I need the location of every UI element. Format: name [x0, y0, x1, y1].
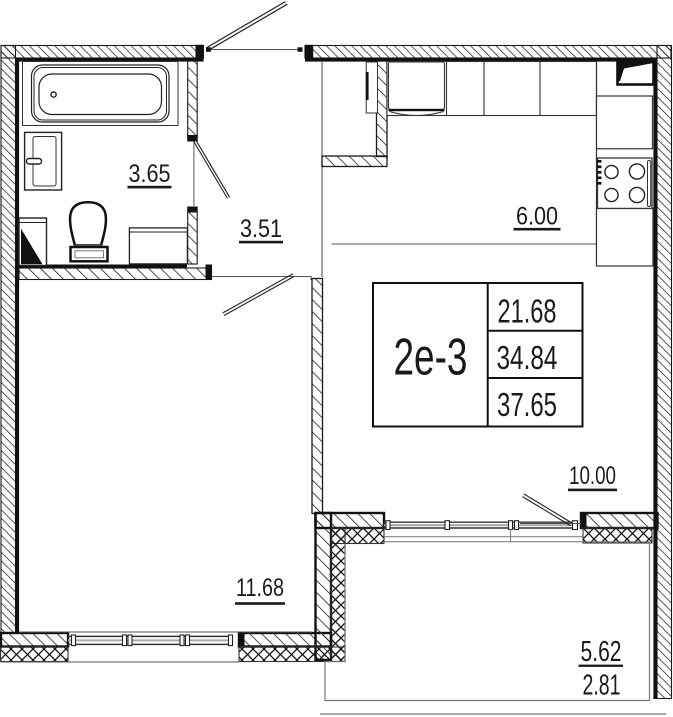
svg-text:6.00: 6.00 — [516, 203, 558, 231]
svg-text:2е-3: 2е-3 — [394, 329, 468, 387]
svg-text:11.68: 11.68 — [236, 574, 284, 602]
svg-text:3.51: 3.51 — [240, 215, 282, 243]
svg-text:10.00: 10.00 — [569, 462, 616, 490]
svg-text:5.62: 5.62 — [581, 636, 622, 668]
svg-text:34.84: 34.84 — [497, 340, 558, 377]
svg-text:37.65: 37.65 — [497, 387, 557, 424]
svg-text:2.81: 2.81 — [583, 670, 621, 702]
svg-text:21.68: 21.68 — [498, 294, 557, 331]
svg-text:3.65: 3.65 — [129, 160, 171, 188]
